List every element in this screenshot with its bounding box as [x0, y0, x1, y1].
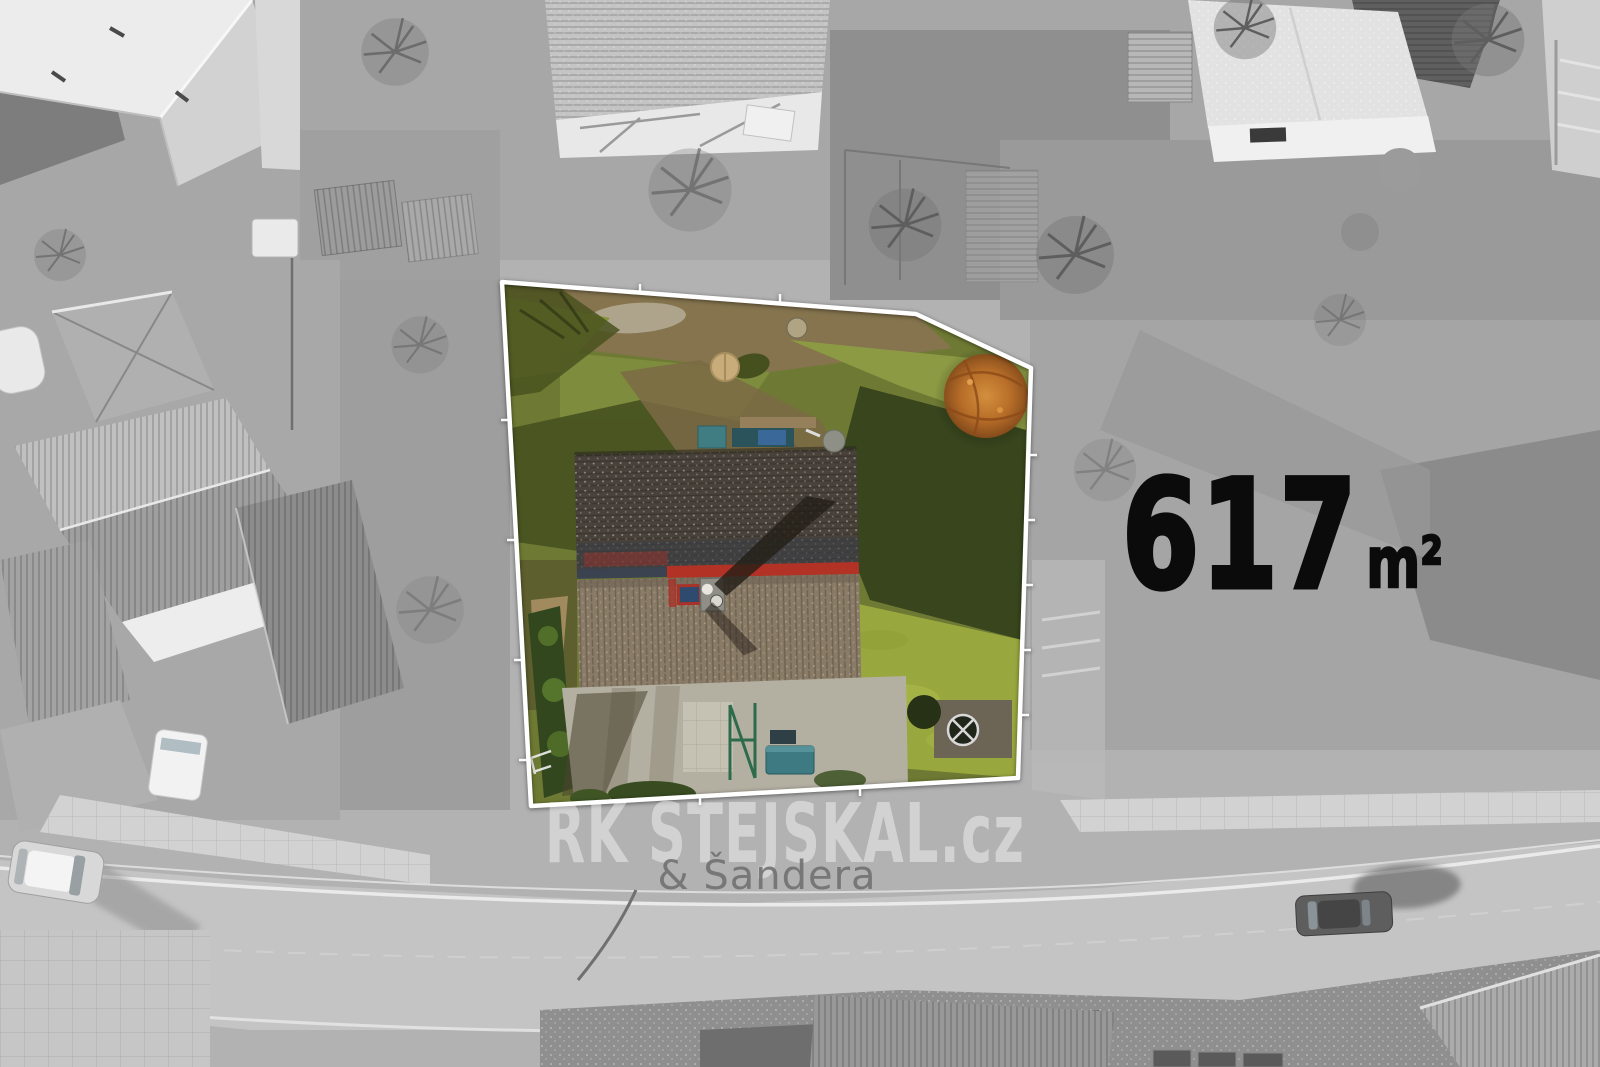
garden-barrel	[787, 318, 807, 338]
round-bush	[1378, 148, 1422, 192]
bin	[1153, 1050, 1191, 1067]
watermark-subtitle: & Šandera	[657, 856, 876, 896]
dark-equipment	[770, 730, 796, 744]
bin	[1198, 1052, 1236, 1067]
real-estate-aerial-photo: RK STEJSKAL.cz & Šandera 617 m²	[0, 0, 1600, 1067]
area-unit: m²	[1366, 528, 1443, 598]
area-label: 617 m²	[1122, 461, 1443, 611]
background-shed-1	[314, 180, 401, 255]
skylight	[678, 585, 700, 603]
round-bush	[1341, 213, 1379, 251]
main-house	[574, 446, 861, 700]
white-van	[148, 729, 209, 802]
neighbor-paved-strip	[1032, 560, 1105, 800]
background-house-top-center	[545, 0, 830, 158]
teal-shed	[766, 746, 814, 774]
area-value: 617	[1122, 461, 1358, 611]
bin	[1243, 1053, 1283, 1067]
plot-highlight	[490, 270, 1050, 820]
roof-ridge-dark	[577, 567, 667, 579]
background-shed-2	[402, 194, 479, 262]
